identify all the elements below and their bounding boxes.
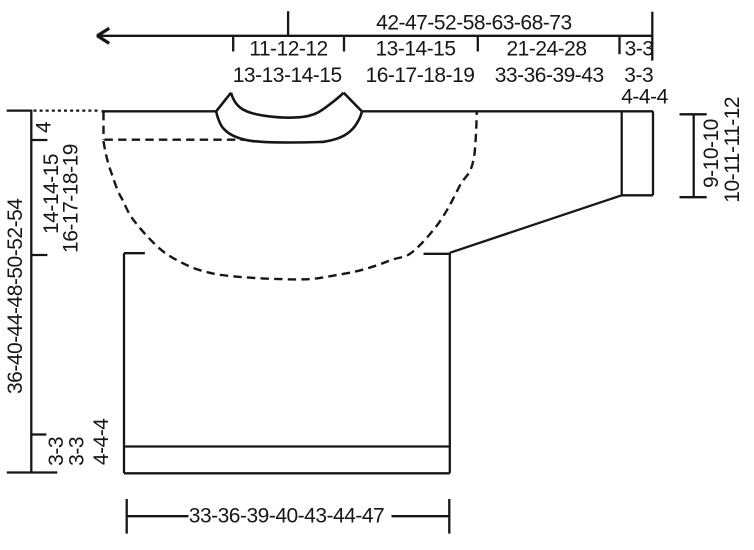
svg-text:4-4-4: 4-4-4 <box>621 85 668 108</box>
svg-text:13-14-15: 13-14-15 <box>375 38 455 61</box>
svg-text:42-47-52-58-63-68-73: 42-47-52-58-63-68-73 <box>376 11 571 34</box>
svg-text:9-10-10: 9-10-10 <box>700 119 723 188</box>
svg-text:33-36-39-40-43-44-47: 33-36-39-40-43-44-47 <box>189 504 384 527</box>
svg-text:13-13-14-15: 13-13-14-15 <box>233 64 342 87</box>
svg-text:3-3: 3-3 <box>624 64 653 87</box>
svg-text:16-17-18-19: 16-17-18-19 <box>59 144 82 253</box>
svg-text:4: 4 <box>33 121 56 133</box>
svg-text:3-3: 3-3 <box>66 437 89 466</box>
svg-text:16-17-18-19: 16-17-18-19 <box>366 64 475 87</box>
svg-text:21-24-28: 21-24-28 <box>506 38 586 61</box>
svg-text:11-12-12: 11-12-12 <box>249 38 328 61</box>
svg-text:33-36-39-43: 33-36-39-43 <box>495 64 604 87</box>
svg-text:10-11-11-12: 10-11-11-12 <box>721 97 744 203</box>
svg-text:36-40-44-48-50-52-54: 36-40-44-48-50-52-54 <box>4 198 27 394</box>
svg-text:3-3: 3-3 <box>625 38 654 61</box>
svg-text:4-4-4: 4-4-4 <box>90 418 113 465</box>
